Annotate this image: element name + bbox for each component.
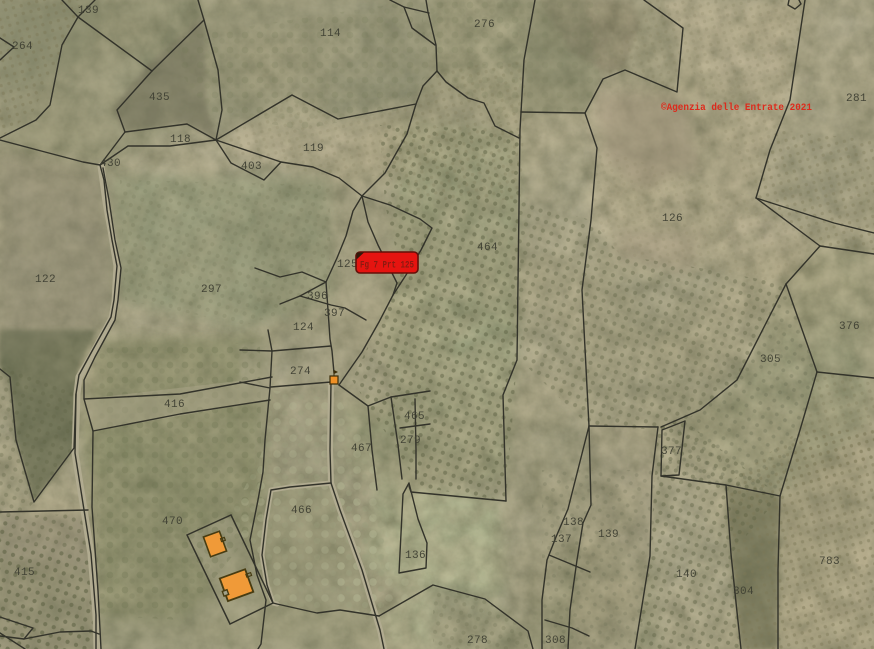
- svg-text:397: 397: [324, 308, 345, 320]
- svg-text:138: 138: [563, 517, 584, 529]
- svg-text:783: 783: [819, 556, 840, 568]
- svg-text:403: 403: [241, 161, 262, 173]
- svg-text:464: 464: [477, 242, 498, 254]
- svg-text:276: 276: [474, 19, 495, 31]
- svg-text:118: 118: [170, 134, 191, 146]
- svg-text:304: 304: [733, 586, 754, 598]
- svg-text:122: 122: [35, 274, 56, 286]
- svg-text:466: 466: [291, 505, 312, 517]
- svg-text:126: 126: [662, 213, 683, 225]
- svg-text:297: 297: [201, 284, 222, 296]
- svg-text:140: 140: [676, 569, 697, 581]
- svg-text:435: 435: [149, 92, 170, 104]
- svg-text:467: 467: [351, 443, 372, 455]
- svg-text:470: 470: [162, 516, 183, 528]
- svg-text:136: 136: [405, 550, 426, 562]
- svg-text:416: 416: [164, 399, 185, 411]
- svg-text:©Agenzia delle Entrate 2021: ©Agenzia delle Entrate 2021: [661, 102, 812, 114]
- svg-text:139: 139: [78, 5, 99, 17]
- svg-text:376: 376: [839, 321, 860, 333]
- svg-text:281: 281: [846, 93, 867, 105]
- svg-text:305: 305: [760, 354, 781, 366]
- svg-text:124: 124: [293, 322, 314, 334]
- svg-text:114: 114: [320, 28, 341, 40]
- svg-text:396: 396: [307, 291, 328, 303]
- svg-text:430: 430: [100, 158, 121, 170]
- svg-text:139: 139: [598, 529, 619, 541]
- svg-text:274: 274: [290, 366, 311, 378]
- svg-text:465: 465: [404, 411, 425, 423]
- svg-text:415: 415: [14, 567, 35, 579]
- svg-text:Fg 7 Prt 125: Fg 7 Prt 125: [360, 261, 414, 272]
- svg-text:125: 125: [337, 259, 358, 271]
- svg-text:278: 278: [467, 635, 488, 647]
- svg-text:137: 137: [551, 534, 572, 546]
- svg-text:264: 264: [12, 41, 33, 53]
- svg-text:377: 377: [661, 446, 682, 458]
- svg-text:279: 279: [400, 435, 421, 447]
- svg-text:308: 308: [545, 635, 566, 647]
- svg-text:119: 119: [303, 143, 324, 155]
